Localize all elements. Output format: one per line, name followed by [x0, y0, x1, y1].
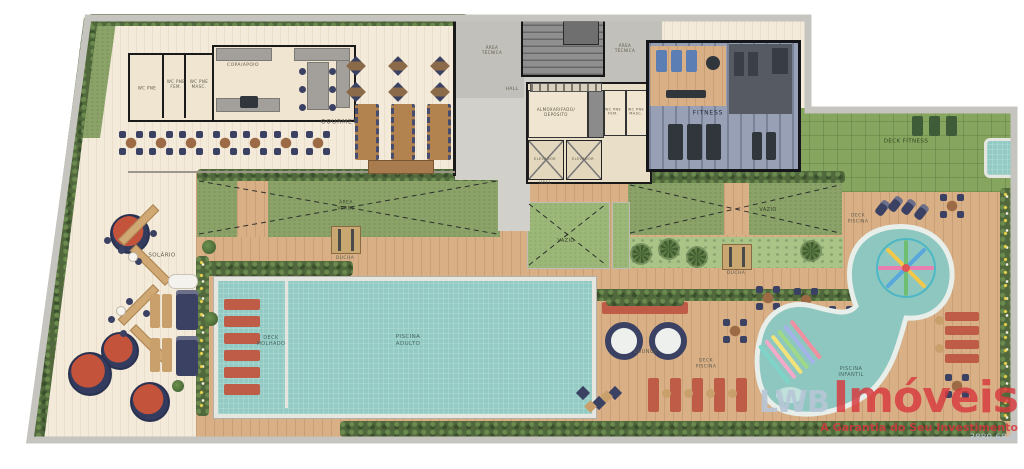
label-ducha: DUCHA [727, 271, 745, 277]
label-piscina-adulto: PISCINA ADULTO [388, 334, 428, 348]
label-wc-pne-masc: WC PNE MASC. [188, 79, 210, 89]
label-copa-apoio: COPA/APOIO [227, 63, 259, 69]
label-wc-pne: WC PNE [134, 86, 160, 91]
label-wc-pne-fem: WC PNE FEM. [604, 108, 622, 117]
watermark-brand: Imóveis [833, 372, 1018, 423]
watermark-prefix: LWB [759, 385, 829, 420]
label-almoxarifado: ALMOXARIFADO/ DEPÓSITO [533, 107, 579, 117]
label-vazio: VAZIO [759, 207, 776, 213]
label-deck-piscina: DECK PISCINA [691, 358, 721, 369]
label-wc-pne-masc: WC PNE MASC. [627, 108, 645, 117]
watermark-tagline: A Garantia do Seu Investimento [759, 422, 1018, 433]
label-area-tecnica: ÁREA TÉCNICA [475, 45, 509, 55]
label-area-tecnica: ÁREA TÉCNICA [608, 43, 642, 53]
watermark-phone: 3889.6836 [759, 434, 1018, 443]
label-elevador: ELEVADOR [567, 157, 599, 161]
label-fitness: FITNESS [693, 109, 723, 117]
label-elevador: ELEVADOR [529, 157, 561, 161]
label-lounge: LOUNGE [634, 349, 657, 355]
watermark-brand-line: LWBImóveis [759, 376, 1018, 420]
floor-plan: WC PNE WC PNE FEM. WC PNE MASC. COPA/APO… [0, 0, 1024, 469]
label-ducha: DUCHA [336, 256, 354, 262]
void-cross-lines [199, 181, 840, 265]
label-deck-fitness: DECK FITNESS [884, 139, 928, 146]
pinwheel-graphic [880, 242, 932, 294]
label-deck-molhado: DECK MOLHADO [253, 335, 289, 348]
watermark: LWBImóveis A Garantia do Seu Investiment… [759, 376, 1018, 443]
label-vazio: VAZIO [557, 238, 574, 244]
label-wc-pne-fem: WC PNE FEM. [166, 79, 186, 89]
label-deck-piscina: DECK PISCINA [843, 213, 873, 224]
label-gourmet: GOURMET [321, 118, 357, 126]
label-solario: SOLÁRIO [148, 253, 175, 260]
label-hall: HALL [505, 87, 518, 93]
label-hall: HALL [538, 181, 551, 187]
label-area-verde: ÁREA VERDE [331, 200, 361, 211]
